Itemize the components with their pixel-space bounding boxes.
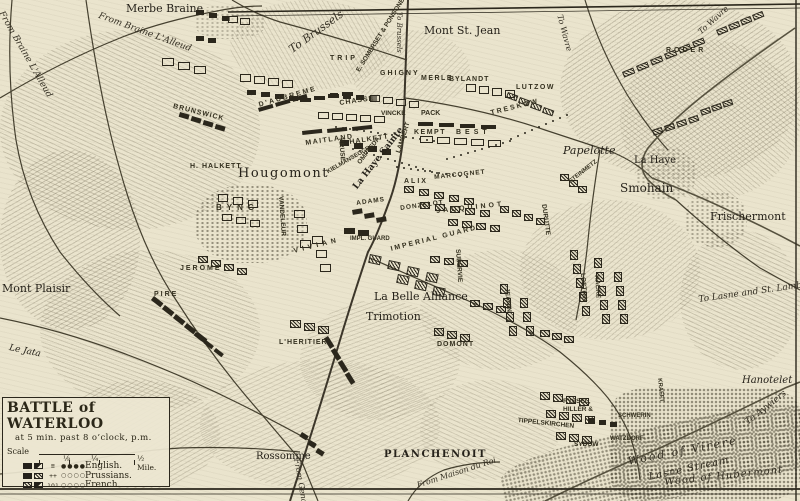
troop-unit-marker bbox=[509, 140, 511, 142]
troop-unit-marker bbox=[510, 138, 512, 140]
place-label-mont-st-jean: Mont St. Jean bbox=[424, 25, 500, 36]
troop-unit-marker bbox=[162, 305, 175, 316]
troop-unit-marker bbox=[419, 189, 429, 196]
troop-unit-marker bbox=[198, 256, 208, 263]
troop-label-ryssel: RYSSEL, bbox=[563, 399, 591, 406]
troop-unit-marker bbox=[342, 127, 344, 129]
troop-unit-marker bbox=[338, 360, 349, 373]
troop-unit-marker bbox=[722, 99, 733, 108]
troop-unit-marker bbox=[622, 68, 635, 78]
map-title: BATTLE of WATERLOO bbox=[7, 400, 169, 432]
scale-mark: ½ Mile. bbox=[137, 454, 156, 472]
troop-label-byng: BYNG bbox=[216, 204, 259, 212]
troop-unit-marker bbox=[453, 156, 455, 158]
troop-unit-marker bbox=[711, 103, 722, 112]
troop-unit-marker bbox=[360, 115, 371, 122]
troop-unit-marker bbox=[194, 332, 204, 341]
troop-label-vandeleur: VANDELEUR bbox=[277, 196, 286, 236]
troop-unit-marker bbox=[332, 113, 343, 120]
troop-unit-marker bbox=[236, 217, 246, 224]
troop-label-jerome: JEROME bbox=[180, 265, 222, 272]
troop-unit-marker bbox=[410, 168, 412, 170]
troop-unit-marker bbox=[509, 326, 517, 336]
scale-label: Scale bbox=[7, 447, 29, 456]
scale-line: ⅛¼½ Mile. bbox=[39, 454, 135, 455]
troop-unit-marker bbox=[540, 330, 550, 337]
troop-unit-marker bbox=[203, 120, 214, 128]
scale-mark: ⅛ bbox=[63, 454, 70, 463]
troop-unit-marker bbox=[650, 56, 663, 66]
troop-label-l-heritier: L'HERITIER bbox=[279, 339, 328, 346]
troop-label-durutte: DURUTTE bbox=[540, 204, 551, 236]
troop-unit-marker bbox=[335, 126, 337, 128]
troop-unit-marker bbox=[376, 216, 387, 223]
troop-unit-marker bbox=[196, 36, 204, 41]
troop-unit-marker bbox=[446, 158, 448, 160]
troop-unit-marker bbox=[448, 219, 458, 226]
troop-unit-marker bbox=[430, 256, 440, 263]
troop-unit-marker bbox=[396, 166, 398, 168]
troop-unit-marker bbox=[194, 66, 206, 74]
troop-unit-marker bbox=[268, 78, 279, 86]
troop-unit-marker bbox=[396, 99, 406, 106]
troop-unit-marker bbox=[470, 300, 480, 307]
troop-label-sydow: SYDOW bbox=[574, 442, 599, 449]
hill-hatching bbox=[40, 250, 260, 410]
troop-unit-marker bbox=[636, 62, 649, 72]
road-label-to-wavre: To Wavre bbox=[555, 14, 572, 52]
troop-unit-marker bbox=[370, 131, 372, 133]
troop-unit-marker bbox=[307, 440, 316, 448]
place-label-la-belle-alliance: La Belle Alliance bbox=[374, 291, 468, 302]
troop-unit-marker bbox=[316, 250, 327, 258]
troop-unit-marker bbox=[728, 21, 740, 31]
troop-unit-marker bbox=[330, 93, 338, 98]
troop-unit-marker bbox=[572, 414, 582, 422]
troop-unit-marker bbox=[471, 139, 484, 146]
troop-unit-marker bbox=[240, 74, 251, 82]
troop-unit-marker bbox=[524, 132, 526, 134]
troop-unit-marker bbox=[449, 195, 459, 202]
scale-tick bbox=[99, 460, 100, 465]
troop-unit-marker bbox=[224, 264, 234, 271]
troop-label-watzdorf: WATZDORF bbox=[610, 436, 644, 442]
troop-unit-marker bbox=[352, 208, 363, 215]
troop-unit-marker bbox=[502, 142, 504, 144]
road-label-to-lasne-and-st-lambert: To Lasne and St. Lambert bbox=[698, 280, 800, 305]
troop-unit-marker bbox=[540, 392, 550, 400]
troop-unit-marker bbox=[552, 120, 554, 122]
troop-label-domont: DOMONT bbox=[437, 341, 474, 348]
troop-unit-marker bbox=[599, 420, 606, 425]
troop-label-ghigny: GHIGNY bbox=[380, 70, 420, 77]
troop-unit-marker bbox=[424, 170, 426, 172]
troop-label-imperial-guard: IMPERIAL GUARD bbox=[390, 224, 478, 252]
troop-unit-marker bbox=[415, 166, 417, 168]
troop-label-steinmetz: STEINMETZ bbox=[568, 159, 598, 185]
troop-unit-marker bbox=[290, 320, 301, 328]
troop-label-alix: ALIX bbox=[404, 178, 428, 185]
troop-label-jeanin: JEANIN bbox=[503, 288, 512, 312]
legend-symbol-box bbox=[23, 473, 32, 479]
troop-label-hiller: HILLER & bbox=[563, 407, 593, 414]
troop-unit-marker bbox=[401, 162, 403, 164]
troop-unit-marker bbox=[209, 13, 217, 18]
troop-unit-marker bbox=[250, 220, 260, 227]
troop-unit-marker bbox=[616, 286, 624, 296]
troop-label-best: BEST bbox=[456, 129, 491, 136]
troop-unit-marker bbox=[346, 114, 357, 121]
troop-unit-marker bbox=[652, 127, 663, 136]
troop-label-roder: RODER bbox=[666, 47, 706, 54]
title-legend-box: BATTLE of WATERLOO at 5 min. past 8 o’cl… bbox=[2, 397, 170, 487]
troop-unit-marker bbox=[404, 186, 414, 193]
troop-unit-marker bbox=[368, 254, 382, 265]
troop-unit-marker bbox=[344, 228, 355, 234]
troop-unit-marker bbox=[300, 98, 311, 102]
legend-symbol-box bbox=[34, 482, 43, 488]
troop-unit-marker bbox=[387, 158, 389, 160]
troop-unit-marker bbox=[218, 194, 228, 202]
troop-unit-marker bbox=[545, 123, 547, 125]
troop-unit-marker bbox=[570, 250, 578, 260]
troop-unit-marker bbox=[517, 135, 519, 137]
troop-unit-marker bbox=[320, 264, 331, 272]
legend-symbol-box bbox=[23, 482, 32, 488]
troop-label-h-halkett: H. HALKETT bbox=[190, 163, 242, 170]
legend-row-french: ıoı○○○○French. bbox=[23, 480, 169, 490]
troop-unit-marker bbox=[588, 418, 595, 423]
place-label-hanotelet: Hanotelet bbox=[742, 376, 792, 386]
road-label-to-aywiers: To Aywiers bbox=[744, 389, 789, 427]
place-label-smohain: Smohain bbox=[620, 182, 673, 194]
troop-label-adams: ADAMS bbox=[356, 197, 385, 207]
place-label-frischermont: Frischermont bbox=[710, 211, 786, 222]
troop-unit-marker bbox=[620, 314, 628, 324]
legend-symbol-marks: ıoı bbox=[45, 481, 61, 489]
troop-unit-marker bbox=[318, 326, 329, 334]
legend-symbol-box bbox=[23, 463, 32, 469]
troop-unit-marker bbox=[447, 331, 457, 339]
troop-label-trip: TRIP bbox=[330, 55, 358, 62]
legend-label: French. bbox=[85, 480, 120, 490]
place-label-la-haye: La Haye bbox=[634, 156, 676, 166]
road-label-from-braine-l-alleud: From Braine L'Alleud bbox=[0, 10, 53, 99]
scale-tick bbox=[39, 460, 40, 465]
troop-unit-marker bbox=[294, 210, 305, 218]
troop-unit-marker bbox=[740, 16, 752, 26]
troop-unit-marker bbox=[222, 214, 232, 221]
legend-symbol-box bbox=[34, 473, 43, 479]
troop-label-losthin: LOSTHIN bbox=[579, 273, 587, 302]
road-label-from-genappe: From Genappe bbox=[292, 458, 310, 501]
troop-label-pire: PIRE bbox=[154, 291, 178, 298]
troop-unit-marker bbox=[431, 171, 433, 173]
legend-symbol-marks: ≡ bbox=[45, 462, 61, 470]
troop-unit-marker bbox=[520, 298, 528, 308]
troop-unit-marker bbox=[394, 160, 396, 162]
troop-unit-marker bbox=[304, 323, 315, 331]
troop-unit-marker bbox=[531, 129, 533, 131]
troop-unit-marker bbox=[383, 97, 393, 104]
road-label-from-braine-l-alleud: From Braine L'Alleud bbox=[97, 12, 192, 54]
troop-unit-marker bbox=[315, 448, 324, 456]
troop-unit-marker bbox=[566, 114, 568, 116]
troop-unit-marker bbox=[208, 38, 216, 43]
scale-tick bbox=[134, 460, 135, 465]
troop-unit-marker bbox=[479, 86, 489, 94]
place-label-planchenoit: PLANCHENOIT bbox=[384, 450, 487, 460]
troop-unit-marker bbox=[204, 340, 214, 349]
troop-unit-marker bbox=[474, 150, 476, 152]
troop-unit-marker bbox=[526, 326, 534, 336]
troop-label-krafft: KRAFFT bbox=[656, 378, 664, 402]
legend-label: Prussians. bbox=[85, 471, 132, 481]
troop-unit-marker bbox=[618, 300, 626, 310]
troop-unit-marker bbox=[688, 115, 699, 124]
troop-unit-marker bbox=[542, 107, 554, 116]
troop-unit-marker bbox=[523, 312, 531, 322]
troop-unit-marker bbox=[490, 225, 500, 232]
troop-unit-marker bbox=[664, 123, 675, 132]
troop-unit-marker bbox=[297, 225, 308, 233]
troop-unit-marker bbox=[439, 123, 454, 127]
troop-unit-marker bbox=[752, 11, 764, 21]
scale-bar: Scale ⅛¼½ Mile. bbox=[7, 445, 169, 458]
scale-mark: ¼ bbox=[91, 454, 98, 463]
troop-unit-marker bbox=[582, 306, 590, 316]
troop-label-impl-guard: IMPL. GUARD bbox=[350, 236, 390, 242]
troop-unit-marker bbox=[408, 164, 410, 166]
troop-label-bylandt: BYLANDT bbox=[449, 76, 489, 83]
troop-unit-marker bbox=[214, 348, 224, 357]
place-label-merbe-braine: Merbe Braine bbox=[126, 3, 203, 14]
troop-unit-marker bbox=[602, 314, 610, 324]
troop-unit-marker bbox=[506, 312, 514, 322]
troop-unit-marker bbox=[600, 300, 608, 310]
troop-unit-marker bbox=[594, 258, 602, 268]
troop-unit-marker bbox=[327, 127, 347, 133]
troop-unit-marker bbox=[173, 314, 186, 325]
troop-unit-marker bbox=[552, 333, 562, 340]
place-label-le-jata: Le Jata bbox=[8, 344, 41, 359]
road-label-from-maison-du-roi: From Maison du Roi bbox=[416, 456, 497, 489]
troop-unit-marker bbox=[412, 137, 414, 139]
troop-label-hacke: HACKE bbox=[593, 275, 601, 299]
place-label-papelotte: Papelotte bbox=[563, 145, 616, 156]
troop-unit-marker bbox=[345, 372, 356, 385]
troop-unit-marker bbox=[610, 422, 617, 427]
troop-unit-marker bbox=[512, 210, 521, 217]
troop-unit-marker bbox=[488, 146, 490, 148]
troop-unit-marker bbox=[418, 122, 433, 126]
troop-unit-marker bbox=[254, 76, 265, 84]
troop-unit-marker bbox=[578, 186, 587, 193]
troop-unit-marker bbox=[564, 336, 574, 343]
hill-hatching bbox=[0, 150, 140, 330]
troop-unit-marker bbox=[282, 80, 293, 88]
troop-unit-marker bbox=[228, 16, 238, 23]
troop-unit-marker bbox=[480, 210, 490, 217]
troop-unit-marker bbox=[426, 139, 428, 141]
troop-unit-marker bbox=[524, 214, 533, 221]
troop-unit-marker bbox=[302, 129, 322, 135]
troop-unit-marker bbox=[419, 138, 421, 140]
troop-unit-marker bbox=[481, 148, 483, 150]
troop-unit-marker bbox=[331, 348, 342, 361]
troop-unit-marker bbox=[247, 90, 256, 95]
legend-symbol-dots: ○○○○ bbox=[61, 472, 85, 479]
place-label-rossomme: Rossomme bbox=[256, 452, 311, 462]
troop-unit-marker bbox=[700, 107, 711, 116]
road-label-to-brussels: To Brussels bbox=[287, 8, 345, 55]
troop-unit-marker bbox=[437, 137, 450, 144]
troop-unit-marker bbox=[409, 101, 419, 108]
troop-label-kruse: KRUSE bbox=[337, 138, 345, 161]
troop-unit-marker bbox=[553, 394, 563, 402]
troop-unit-marker bbox=[433, 140, 435, 142]
troop-unit-marker bbox=[403, 167, 405, 169]
troop-unit-marker bbox=[417, 169, 419, 171]
troop-unit-marker bbox=[299, 432, 308, 440]
troop-unit-marker bbox=[559, 117, 561, 119]
troop-unit-marker bbox=[318, 112, 329, 119]
troop-unit-marker bbox=[178, 62, 190, 70]
hill-hatching bbox=[200, 360, 440, 490]
troop-unit-marker bbox=[614, 272, 622, 282]
troop-label-subervie: SUBERVIE bbox=[454, 249, 463, 282]
troop-unit-marker bbox=[237, 268, 247, 275]
troop-unit-marker bbox=[349, 128, 351, 130]
troop-unit-marker bbox=[716, 26, 728, 36]
troop-label-lutzow: LUTZOW bbox=[516, 84, 555, 91]
place-label-trimotion: Trimotion bbox=[366, 311, 421, 322]
troop-label-schwerin: SCHWERIN bbox=[618, 413, 651, 419]
troop-unit-marker bbox=[215, 124, 226, 132]
troop-unit-marker bbox=[396, 274, 410, 285]
legend-symbol-marks: ++ bbox=[45, 472, 61, 480]
map-subtitle: at 5 min. past 8 o’clock, p.m. bbox=[15, 433, 169, 443]
legend-symbol-dots: ●●●● bbox=[61, 463, 85, 470]
troop-unit-marker bbox=[483, 303, 493, 310]
troop-unit-marker bbox=[556, 432, 566, 440]
troop-unit-marker bbox=[356, 129, 358, 131]
troop-unit-marker bbox=[454, 138, 467, 145]
troop-unit-marker bbox=[434, 328, 444, 336]
troop-unit-marker bbox=[538, 126, 540, 128]
troop-unit-marker bbox=[191, 116, 202, 124]
troop-unit-marker bbox=[240, 18, 250, 25]
troop-unit-marker bbox=[364, 212, 375, 219]
troop-unit-marker bbox=[162, 58, 174, 66]
troop-unit-marker bbox=[460, 154, 462, 156]
troop-unit-marker bbox=[460, 124, 475, 128]
troop-unit-marker bbox=[506, 92, 518, 101]
troop-unit-marker bbox=[495, 144, 497, 146]
legend-symbol-dots: ○○○○ bbox=[61, 482, 85, 489]
place-label-mont-plaisir: Mont Plaisir bbox=[2, 283, 70, 294]
virere-wood-band bbox=[496, 389, 800, 501]
troop-unit-marker bbox=[466, 84, 476, 92]
troop-unit-marker bbox=[363, 130, 365, 132]
troop-unit-marker bbox=[467, 152, 469, 154]
troop-unit-marker bbox=[261, 92, 270, 97]
troop-unit-marker bbox=[676, 119, 687, 128]
waterloo-battle-map: Merbe BraineMont St. JeanHougomontLa Bel… bbox=[0, 0, 800, 501]
place-label-hougomont: Hougomont bbox=[238, 167, 329, 180]
troop-label-kempt: KEMPT bbox=[414, 129, 446, 136]
troop-unit-marker bbox=[314, 96, 325, 100]
troop-unit-marker bbox=[546, 410, 556, 418]
troop-unit-marker bbox=[492, 88, 502, 96]
troop-label-pack: PACK bbox=[421, 110, 440, 117]
troop-label-marcognet: MARCOGNET bbox=[434, 170, 486, 182]
troop-unit-marker bbox=[387, 260, 401, 271]
troop-label-vincke: VINCKE bbox=[381, 111, 406, 118]
troop-unit-marker bbox=[444, 258, 454, 265]
